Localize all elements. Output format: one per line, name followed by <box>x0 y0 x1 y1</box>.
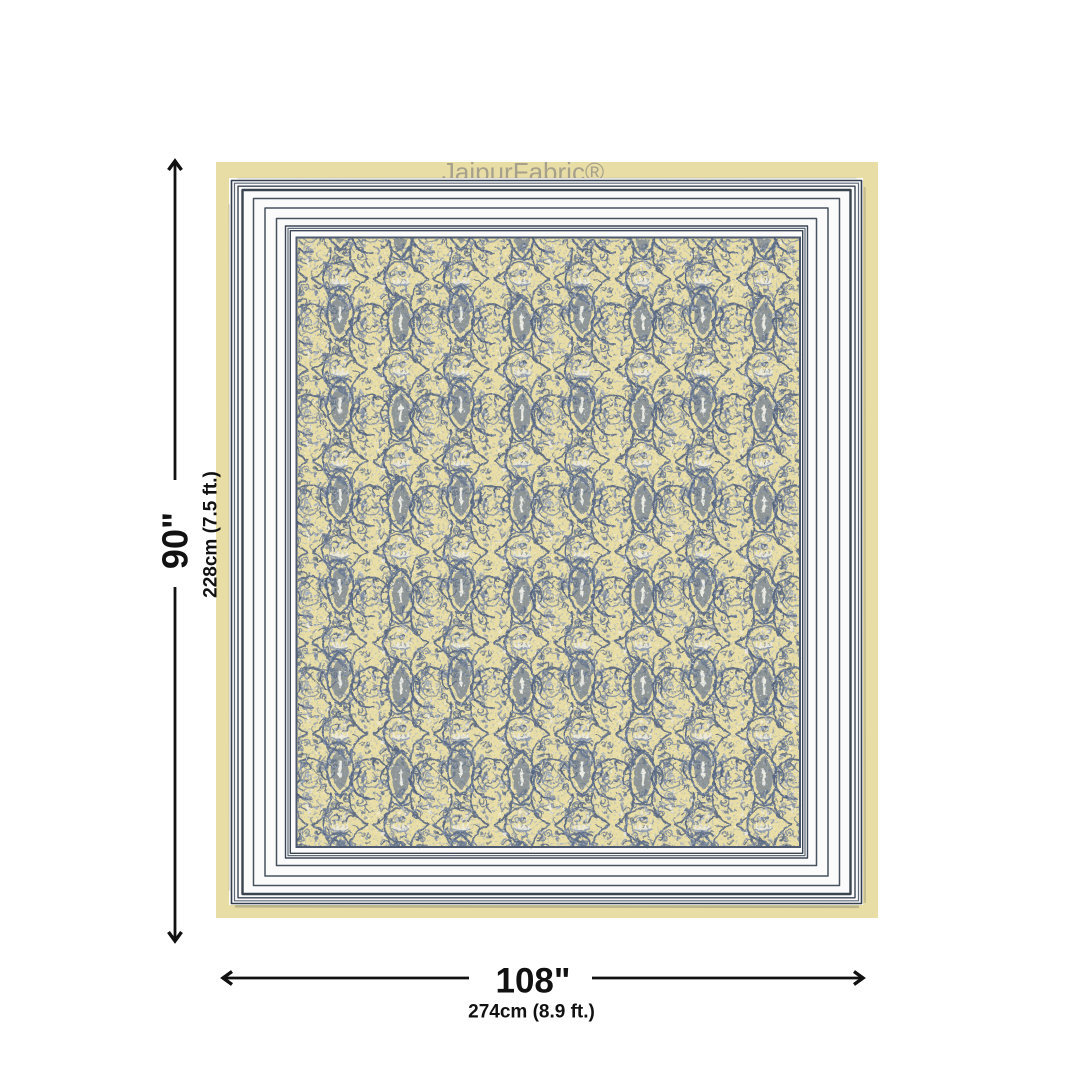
svg-text:90": 90" <box>155 512 196 569</box>
svg-text:274cm (8.9 ft.): 274cm (8.9 ft.) <box>468 1002 595 1023</box>
svg-text:228cm (7.5 ft.): 228cm (7.5 ft.) <box>201 471 222 598</box>
svg-text:108": 108" <box>496 962 571 1001</box>
